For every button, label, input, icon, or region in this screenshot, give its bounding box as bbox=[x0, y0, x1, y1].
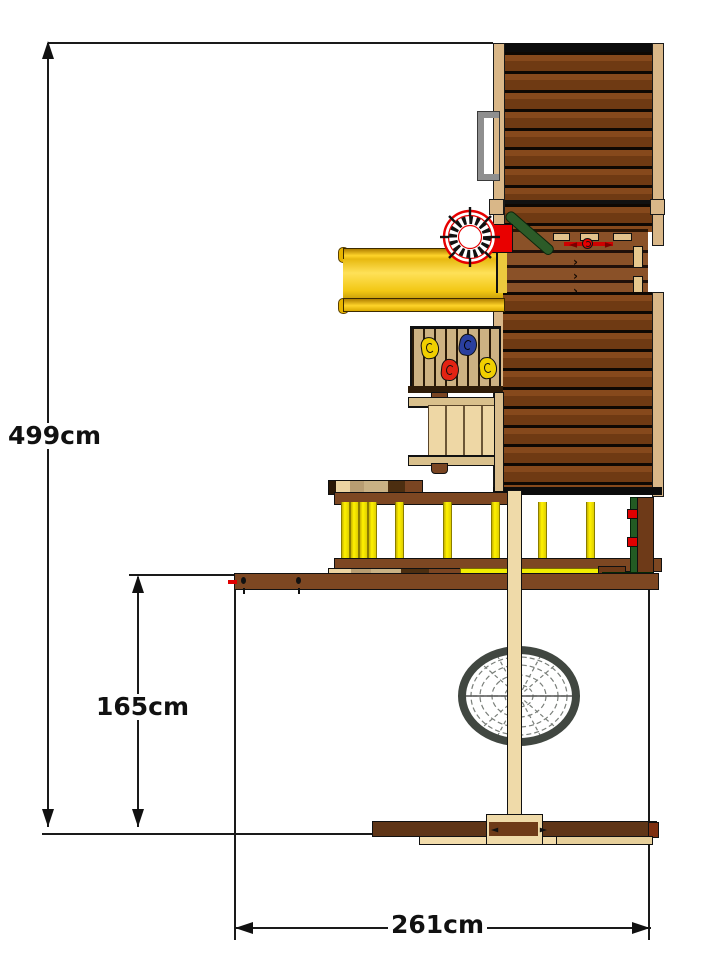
deck-chevron: › bbox=[573, 270, 578, 282]
railing-bar bbox=[368, 502, 377, 560]
railing-bar bbox=[341, 502, 350, 560]
beam-screw-tick bbox=[298, 588, 300, 594]
dim-261-ext-right bbox=[648, 588, 650, 940]
deck-side-batten bbox=[633, 246, 643, 268]
swing-post bbox=[507, 490, 522, 843]
swing-base-plate bbox=[556, 836, 653, 845]
railing-bar bbox=[443, 502, 452, 560]
red-toy-spiral bbox=[582, 238, 593, 249]
railing-bar bbox=[350, 502, 359, 560]
anchor-arrow-left bbox=[491, 828, 498, 833]
red-toy-arrow-left bbox=[569, 242, 577, 247]
railing-bar bbox=[395, 502, 404, 560]
steering-wheel bbox=[440, 207, 500, 267]
red-toy-arrow-right bbox=[605, 242, 613, 247]
anchor-slot bbox=[489, 822, 538, 836]
deck-chevron: › bbox=[573, 256, 578, 268]
dim-label-base-width: 261cm bbox=[388, 912, 487, 938]
window-bracket bbox=[478, 112, 499, 180]
dim-label-total-height: 499cm bbox=[5, 423, 104, 449]
dim-261-arrow-left bbox=[235, 922, 253, 934]
swing-anchor-block bbox=[486, 814, 543, 845]
beam-screw bbox=[296, 577, 301, 584]
tower-deck: › › › bbox=[503, 229, 648, 292]
tower-roof-lower bbox=[503, 292, 652, 487]
dim-499-arrow-bottom bbox=[42, 809, 54, 827]
climbing-wall-bottom-rail bbox=[408, 386, 503, 393]
table-panel bbox=[428, 405, 496, 458]
tower-top-bar bbox=[493, 43, 662, 52]
extension-line-top bbox=[48, 42, 493, 44]
anchor-arrow-right bbox=[540, 828, 547, 833]
deck-plank-gap bbox=[503, 250, 648, 253]
tower-post-right-upper bbox=[652, 43, 664, 246]
railing-bar bbox=[586, 502, 595, 560]
tower-roof-upper bbox=[503, 52, 652, 232]
deck-red-toy bbox=[560, 240, 617, 248]
tower-post-right-lower bbox=[652, 292, 664, 497]
railing-bar bbox=[538, 502, 547, 560]
elevation-drawing: 499cm 165cm 261cm bbox=[0, 0, 702, 970]
beam-screw bbox=[241, 577, 246, 584]
dim-499-arrow-top bbox=[42, 41, 54, 59]
dim-label-platform-height: 165cm bbox=[93, 694, 192, 720]
beam-red-marker bbox=[228, 580, 237, 584]
tower-joint-bar bbox=[503, 200, 652, 204]
table-shelf-bottom bbox=[408, 455, 504, 466]
railing-bar bbox=[359, 502, 368, 560]
post-joint-tab-right bbox=[650, 199, 665, 215]
dim-165-arrow-bottom bbox=[132, 809, 144, 827]
beam-screw-tick bbox=[243, 588, 245, 594]
dim-261-arrow-right bbox=[632, 922, 650, 934]
dim-165-arrow-top bbox=[132, 575, 144, 593]
table-side-post bbox=[494, 392, 504, 492]
dim-165-ext-line bbox=[129, 574, 236, 576]
slide-rail-bottom bbox=[343, 298, 505, 312]
dim-261-ext-left bbox=[234, 576, 236, 940]
railing-bar bbox=[491, 502, 500, 560]
table-post-bottom bbox=[431, 463, 448, 474]
